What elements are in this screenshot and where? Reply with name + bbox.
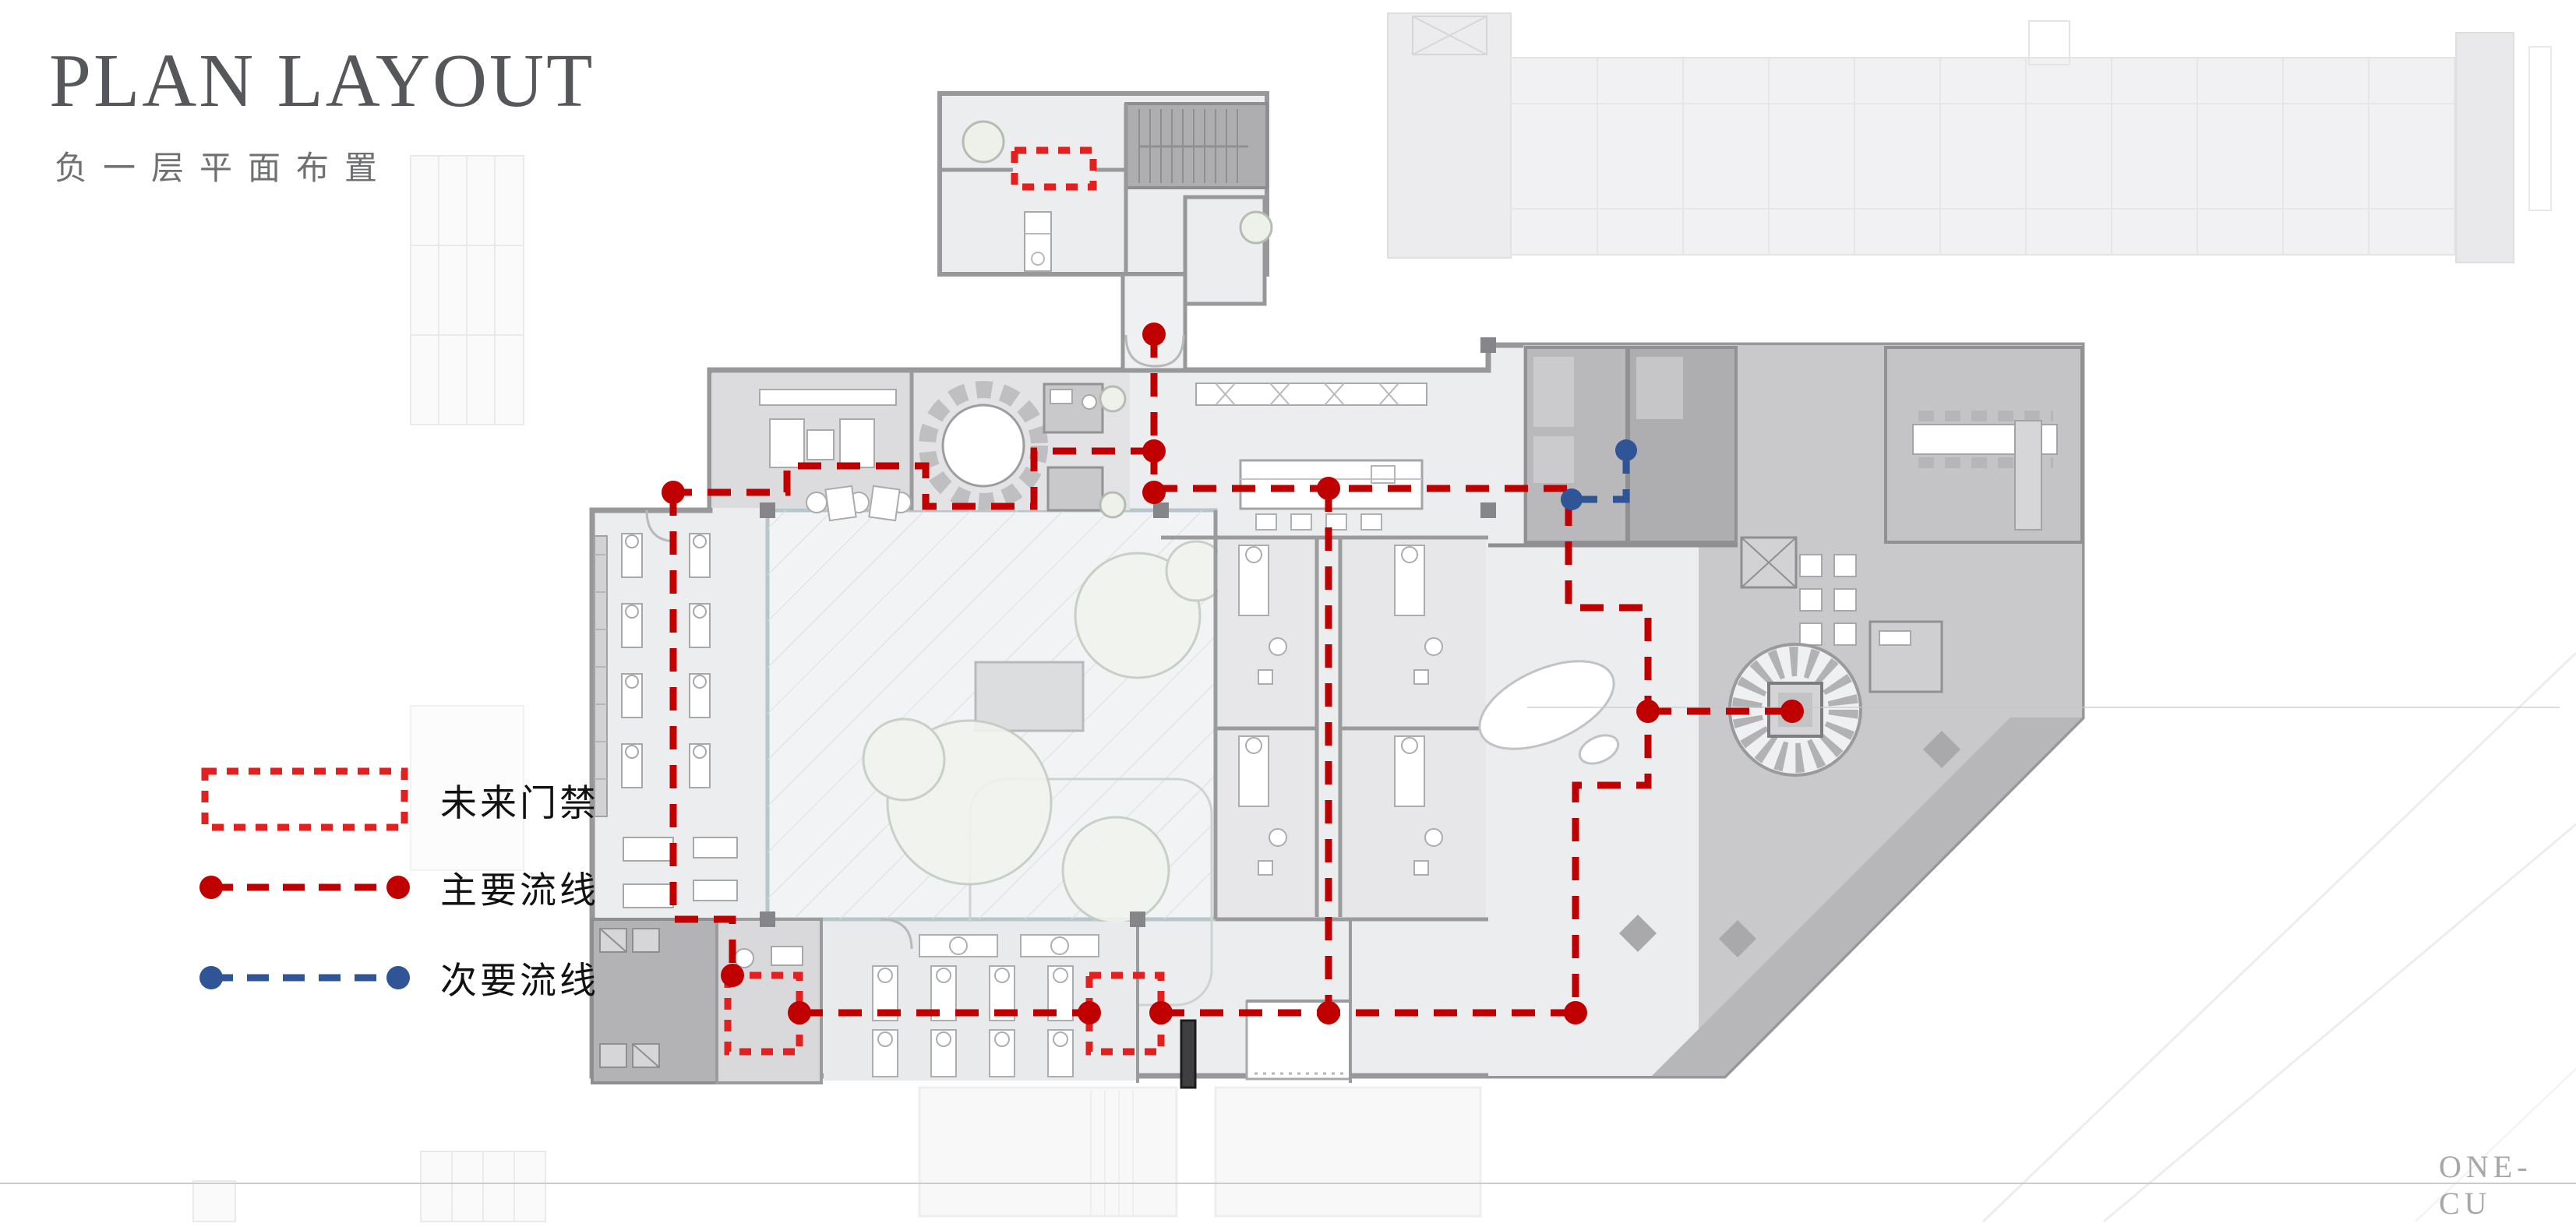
legend-item-secondary-circulation: 次要流线: [199, 950, 599, 1004]
watermark: ONE-CU: [2439, 1148, 2576, 1222]
wine-shelf: [1196, 383, 1427, 405]
page-subtitle: 负一层平面布置: [55, 142, 393, 189]
dark-pier: [1181, 1021, 1195, 1088]
media-bench: [760, 390, 896, 405]
locker-rooms: [592, 919, 821, 1083]
round-table: [943, 405, 1024, 486]
pavilion: [976, 662, 1083, 731]
sofa: [840, 419, 874, 467]
legend-item-primary-circulation: 主要流线: [199, 860, 599, 914]
primary-circulation-swatch: [199, 870, 411, 904]
plant-icon: [963, 122, 1004, 162]
lounge-and-dining: [711, 370, 1130, 520]
page-title: PLAN LAYOUT: [49, 37, 595, 124]
plant-icon: [1100, 386, 1125, 411]
plant-icon: [1100, 492, 1125, 517]
legend-item-future-access: 未来门禁: [199, 765, 599, 834]
legend-label: 未来门禁: [440, 773, 599, 827]
plant-icon: [1240, 212, 1272, 243]
sofa: [770, 419, 804, 467]
footer-divider: [0, 1183, 2576, 1184]
kitchen-island: [1025, 212, 1051, 271]
legend-label: 次要流线: [440, 950, 599, 1004]
future-access-swatch: [199, 765, 411, 834]
slide: { "slide": { "title": "PLAN LAYOUT", "su…: [0, 0, 2576, 1227]
secondary-circulation-swatch: [199, 961, 411, 995]
legend-label: 主要流线: [440, 860, 599, 914]
